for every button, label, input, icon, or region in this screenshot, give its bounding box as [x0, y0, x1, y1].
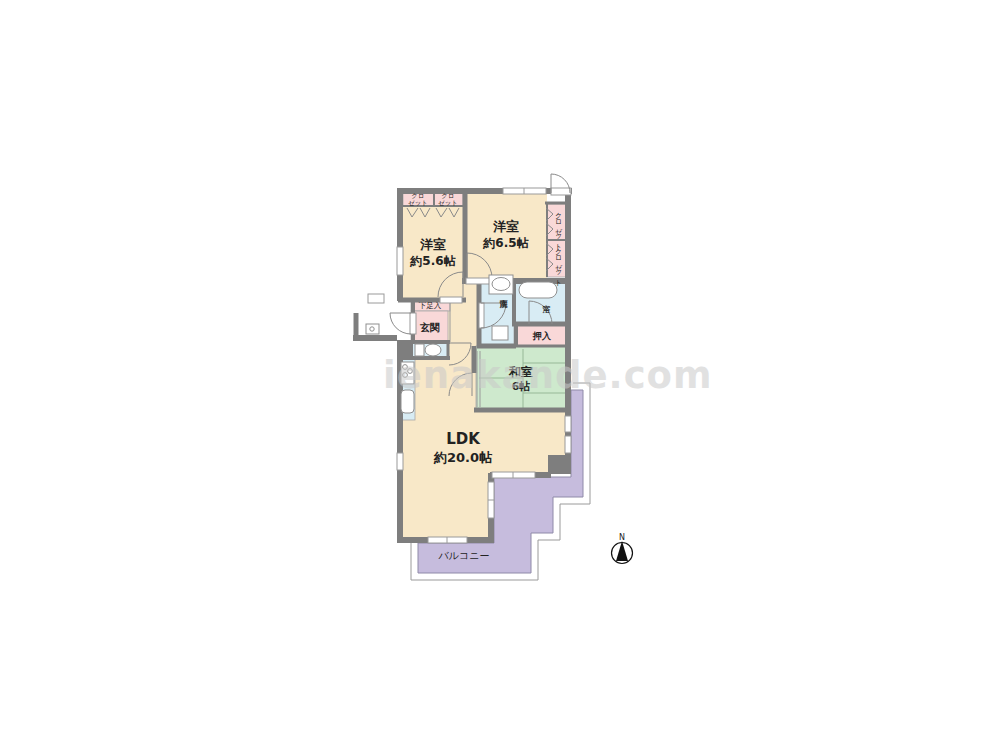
washer-pan-icon — [492, 326, 508, 340]
bathtub-icon — [519, 282, 557, 298]
entrance-opening — [410, 313, 416, 334]
meter-box-icon — [366, 324, 379, 334]
top-door-opening — [551, 188, 571, 195]
floor-plan-page: 洋室 約5.6帖 洋室 約6.5帖 LDK 約20.0帖 和室 6帖 玄関 下足… — [0, 0, 1000, 750]
north-label: N — [619, 533, 625, 542]
balcony-label: バルコニー — [438, 550, 490, 561]
room-ldk-name: LDK — [446, 430, 481, 448]
room-western2-name: 洋室 — [493, 219, 519, 234]
closet-b2-label: クロゼット — [554, 243, 562, 286]
room-western1-name: 洋室 — [420, 237, 446, 252]
shoe-label: 下足入 — [419, 301, 442, 310]
entrance-door-arc — [390, 313, 411, 334]
closet-a1-line2: ゼット — [408, 199, 428, 207]
oshiire-label: 押入 — [532, 331, 552, 341]
door-opening — [479, 303, 484, 328]
watermark: ienakande.com — [383, 354, 713, 397]
closet-a2-line2: ゼット — [438, 199, 458, 207]
room-western1-size: 約5.6帖 — [409, 254, 456, 268]
meter-box — [368, 294, 384, 303]
room-ldk-size: 約20.0帖 — [433, 450, 493, 465]
floor-plan: 洋室 約5.6帖 洋室 約6.5帖 LDK 約20.0帖 和室 6帖 玄関 下足… — [0, 0, 1000, 750]
room-western2-size: 約6.5帖 — [482, 236, 529, 250]
door-opening — [466, 278, 491, 284]
door-opening — [440, 297, 462, 303]
compass: N — [612, 533, 633, 564]
genkan-label: 玄関 — [419, 322, 440, 333]
